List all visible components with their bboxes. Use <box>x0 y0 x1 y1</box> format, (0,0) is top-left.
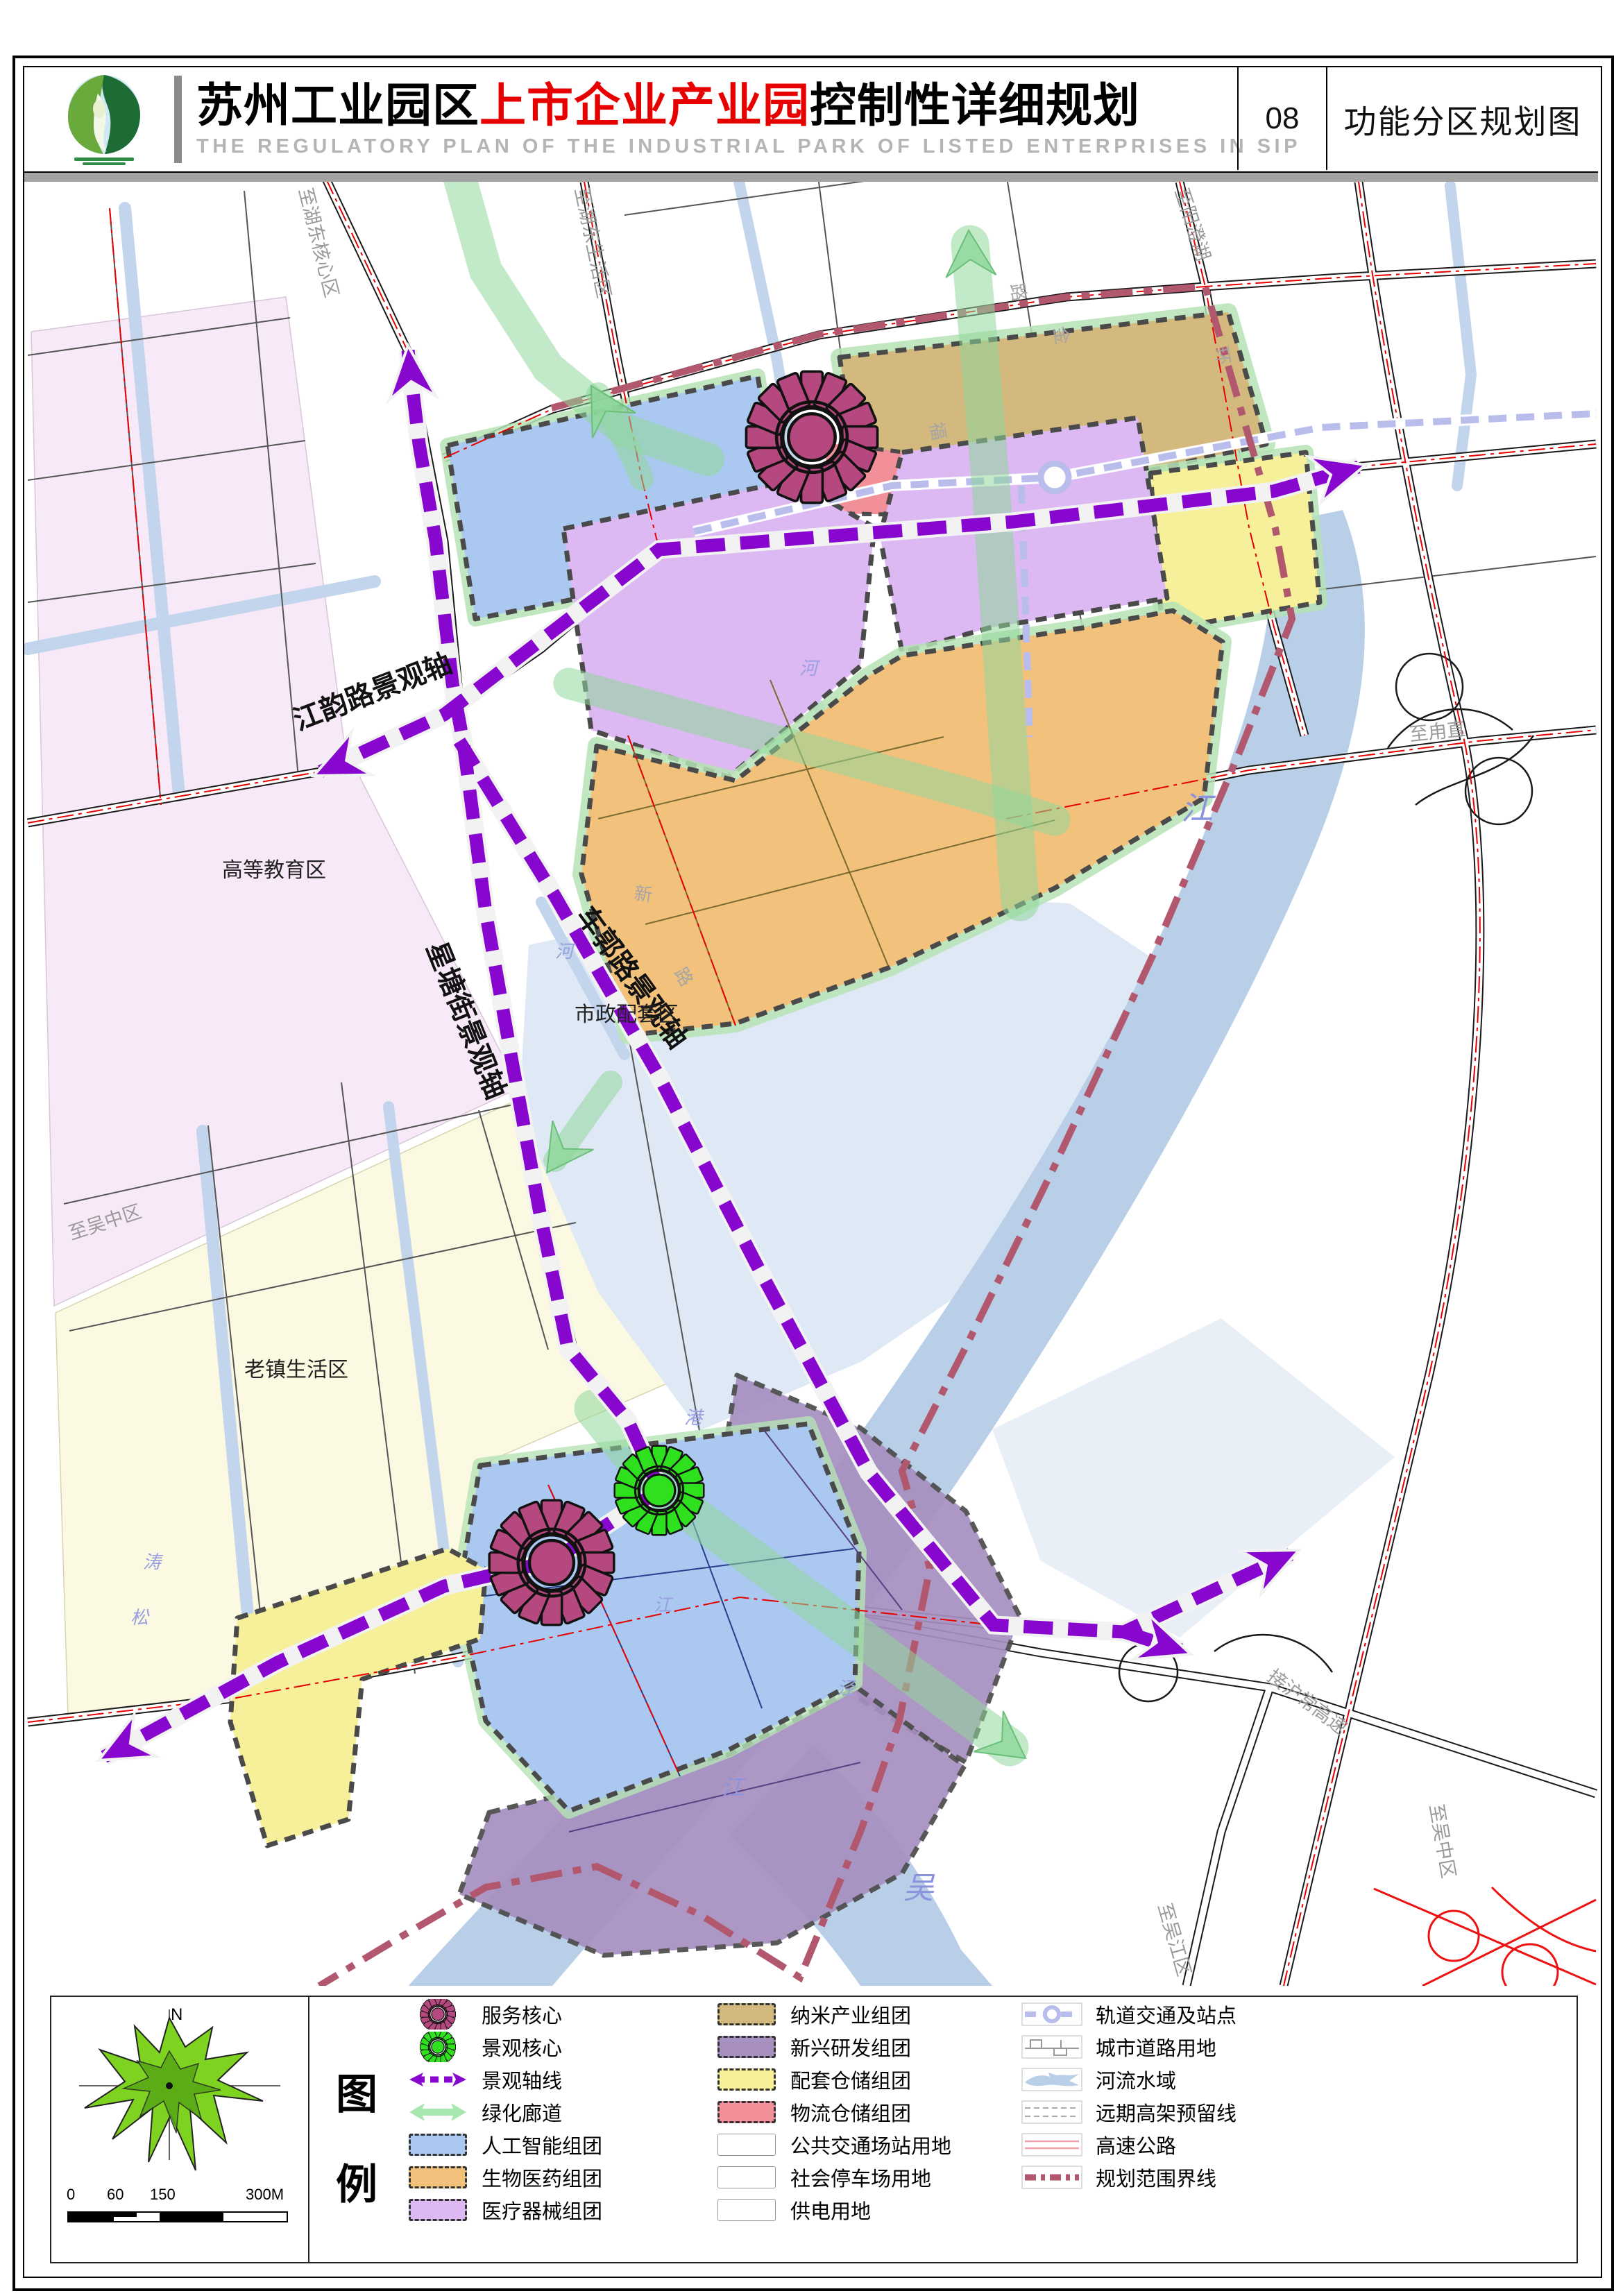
legend-item-emerging-rd-cluster: 新兴研发组团 <box>715 2031 911 2063</box>
legend-item-label: 河流水域 <box>1096 2065 1176 2094</box>
highway-icon <box>1021 2132 1083 2158</box>
interchange-red <box>1374 1887 1596 1986</box>
title-part-red: 上市企业产业园 <box>479 80 810 132</box>
legend-item-biomedicine-cluster: 生物医药组团 <box>407 2161 602 2193</box>
legend-box: 图 例 服务核心景观核心景观轴线绿化廊道人工智能组团生物医药组团医疗器械组团 纳… <box>308 1996 1578 2263</box>
swatch-icon <box>715 2001 778 2027</box>
header-divider-bar <box>174 76 182 163</box>
legend-compass-box: N 060150300M <box>50 1996 311 2263</box>
green-arrow-icon <box>407 2099 469 2125</box>
legend-item-label: 新兴研发组团 <box>790 2032 911 2061</box>
legend-item-supporting-warehouse-cluster: 配套仓储组团 <box>715 2064 911 2095</box>
legend-column-1: 服务核心景观核心景观轴线绿化廊道人工智能组团生物医药组团医疗器械组团 <box>407 1997 705 2262</box>
service-core-north <box>746 371 877 502</box>
legend-item-label: 供电用地 <box>790 2195 871 2225</box>
rail-station <box>1041 464 1069 491</box>
legend-item-label: 高速公路 <box>1096 2130 1176 2159</box>
legend-item-label: 社会停车场用地 <box>790 2163 931 2192</box>
legend-item-label: 人工智能组团 <box>482 2130 602 2159</box>
service-core-south <box>489 1500 614 1625</box>
swatch-plain-icon <box>715 2197 778 2223</box>
header: 苏州工业园区上市企业产业园控制性详细规划 THE REGULATORY PLAN… <box>24 67 1598 173</box>
swatch-icon <box>715 2066 778 2093</box>
page-title-english: THE REGULATORY PLAN OF THE INDUSTRIAL PA… <box>196 135 1230 158</box>
legend-char-li: 例 <box>336 2151 377 2211</box>
legend-column-3: 轨道交通及站点城市道路用地河流水域远期高架预留线高速公路规划范围界线 <box>1021 1997 1319 2262</box>
legend-item-label: 绿化廊道 <box>482 2098 562 2127</box>
swatch-icon <box>715 2034 778 2060</box>
road-icon <box>1021 2034 1083 2060</box>
legend-item-label: 规划范围界线 <box>1096 2163 1216 2192</box>
legend-item-service-core: 服务核心 <box>407 1998 562 2030</box>
swatch-plain-icon <box>715 2164 778 2191</box>
legend-item-label: 服务核心 <box>482 2000 562 2029</box>
legend-item-river-water: 河流水域 <box>1021 2064 1176 2095</box>
legend-item-label: 物流仓储组团 <box>790 2098 911 2127</box>
scale-label-0: 0 <box>67 2186 75 2204</box>
swatch-plain-icon <box>715 2132 778 2158</box>
flower-green-icon <box>407 2034 469 2060</box>
legend-item-label: 轨道交通及站点 <box>1096 2000 1237 2029</box>
title-part-2: 控制性详细规划 <box>810 80 1140 132</box>
swatch-icon <box>715 2099 778 2125</box>
sheet-number: 08 <box>1239 67 1326 170</box>
scale-label-300M: 300M <box>246 2186 284 2204</box>
legend-item-rail-transit-stations: 轨道交通及站点 <box>1021 1998 1237 2030</box>
sip-logo <box>44 73 165 167</box>
legend-item-public-transport-station-land: 公共交通场站用地 <box>715 2129 951 2161</box>
legend-item-label: 远期高架预留线 <box>1096 2098 1237 2127</box>
flower-magenta-icon <box>407 2001 469 2027</box>
axis-arrow-icon <box>407 2066 469 2093</box>
map-canvas <box>24 182 1598 1986</box>
boundary-icon <box>1021 2164 1083 2191</box>
swatch-icon <box>407 2197 469 2223</box>
scale-label-60: 60 <box>107 2186 124 2204</box>
legend-item-power-supply-land: 供电用地 <box>715 2194 871 2226</box>
legend-item-green-corridor: 绿化廊道 <box>407 2096 562 2128</box>
legend-column-2: 纳米产业组团新兴研发组团配套仓储组团物流仓储组团公共交通场站用地社会停车场用地供… <box>715 1997 1014 2262</box>
legend-item-label: 纳米产业组团 <box>790 2000 911 2029</box>
legend-item-expressway: 高速公路 <box>1021 2129 1176 2161</box>
legend-item-future-elevated-reserved-line: 远期高架预留线 <box>1021 2096 1237 2128</box>
legend-char-fig: 图 <box>336 2061 377 2121</box>
page-title: 苏州工业园区上市企业产业园控制性详细规划 <box>196 83 1230 129</box>
elevated-icon <box>1021 2099 1083 2125</box>
legend-item-ai-cluster: 人工智能组团 <box>407 2129 602 2161</box>
legend-item-nano-industry-cluster: 纳米产业组团 <box>715 1998 911 2030</box>
legend-item-label: 景观轴线 <box>482 2065 562 2094</box>
legend-item-urban-road-land: 城市道路用地 <box>1021 2031 1216 2063</box>
legend-item-label: 配套仓储组团 <box>790 2065 911 2094</box>
legend-item-public-parking-land: 社会停车场用地 <box>715 2161 931 2193</box>
compass-north-label: N <box>171 2005 182 2025</box>
legend-item-label: 公共交通场站用地 <box>790 2130 951 2159</box>
legend-item-planning-boundary: 规划范围界线 <box>1021 2161 1216 2193</box>
rail-icon <box>1021 2001 1083 2027</box>
legend-item-label: 医疗器械组团 <box>482 2195 602 2225</box>
river-icon <box>1021 2066 1083 2093</box>
legend-item-landscape-core: 景观核心 <box>407 2031 562 2063</box>
legend-item-label: 生物医药组团 <box>482 2163 602 2192</box>
legend-item-label: 景观核心 <box>482 2032 562 2061</box>
sheet-title: 功能分区规划图 <box>1327 67 1598 170</box>
swatch-icon <box>407 2132 469 2158</box>
plan-sheet: 苏州工业园区上市企业产业园控制性详细规划 THE REGULATORY PLAN… <box>0 0 1623 2296</box>
landscape-core <box>615 1446 704 1536</box>
legend-item-landscape-axis: 景观轴线 <box>407 2064 562 2095</box>
scale-bar <box>62 2205 298 2233</box>
legend-item-logistics-warehouse-cluster: 物流仓储组团 <box>715 2096 911 2128</box>
swatch-icon <box>407 2164 469 2191</box>
map-top-strip <box>24 173 1598 182</box>
title-part-1: 苏州工业园区 <box>196 80 479 132</box>
legend-item-medical-device-cluster: 医疗器械组团 <box>407 2194 602 2226</box>
legend-item-label: 城市道路用地 <box>1096 2032 1216 2061</box>
scale-label-150: 150 <box>150 2186 176 2204</box>
